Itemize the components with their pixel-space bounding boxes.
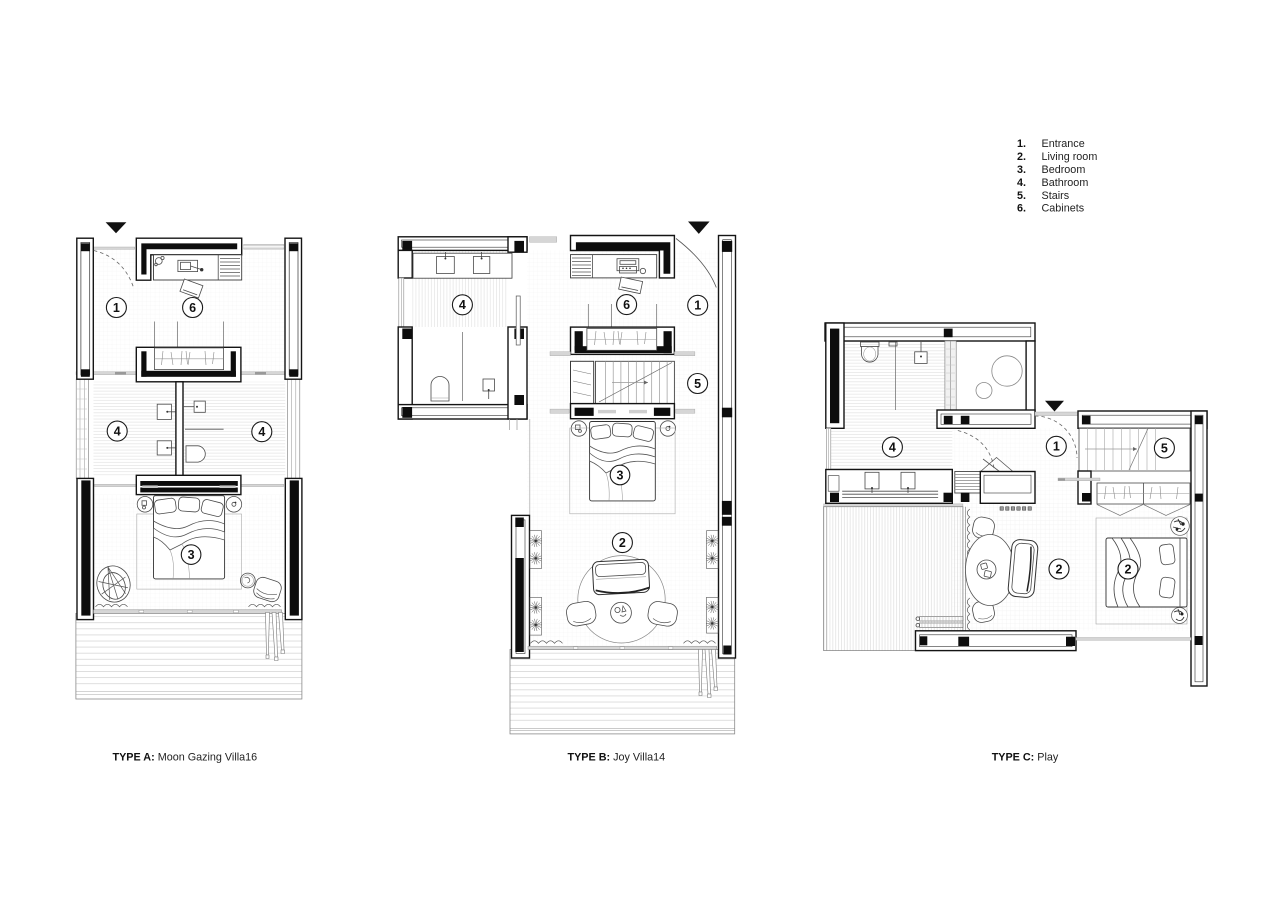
svg-text:2: 2 (1125, 562, 1132, 576)
svg-text:4: 4 (889, 441, 896, 455)
svg-text:Bathroom: Bathroom (1042, 177, 1089, 189)
svg-text:5: 5 (1161, 441, 1168, 455)
svg-text:TYPE C: Play: TYPE C: Play (992, 752, 1059, 764)
svg-text:6: 6 (189, 301, 196, 315)
svg-text:1.: 1. (1017, 138, 1026, 150)
svg-text:4: 4 (114, 425, 121, 439)
svg-text:4: 4 (459, 298, 466, 312)
svg-text:TYPE A: Moon Gazing Villa16: TYPE A: Moon Gazing Villa16 (113, 752, 258, 764)
svg-text:Entrance: Entrance (1042, 138, 1085, 150)
svg-text:6: 6 (623, 298, 630, 312)
svg-text:TYPE B: Joy Villa14: TYPE B: Joy Villa14 (568, 752, 666, 764)
svg-text:5: 5 (694, 377, 701, 391)
svg-text:1: 1 (113, 301, 120, 315)
svg-text:Bedroom: Bedroom (1042, 164, 1086, 176)
svg-text:6.: 6. (1017, 203, 1026, 215)
svg-text:2.: 2. (1017, 151, 1026, 163)
svg-text:Cabinets: Cabinets (1042, 203, 1085, 215)
svg-text:2: 2 (619, 536, 626, 550)
svg-text:3.: 3. (1017, 164, 1026, 176)
svg-text:4: 4 (258, 425, 265, 439)
svg-text:1: 1 (694, 299, 701, 313)
svg-text:3: 3 (188, 548, 195, 562)
svg-text:5.: 5. (1017, 190, 1026, 202)
svg-text:Living room: Living room (1042, 151, 1098, 163)
svg-text:1: 1 (1053, 440, 1060, 454)
svg-text:2: 2 (1056, 562, 1063, 576)
svg-text:4.: 4. (1017, 177, 1026, 189)
svg-text:Stairs: Stairs (1042, 190, 1070, 202)
svg-text:3: 3 (617, 468, 624, 482)
